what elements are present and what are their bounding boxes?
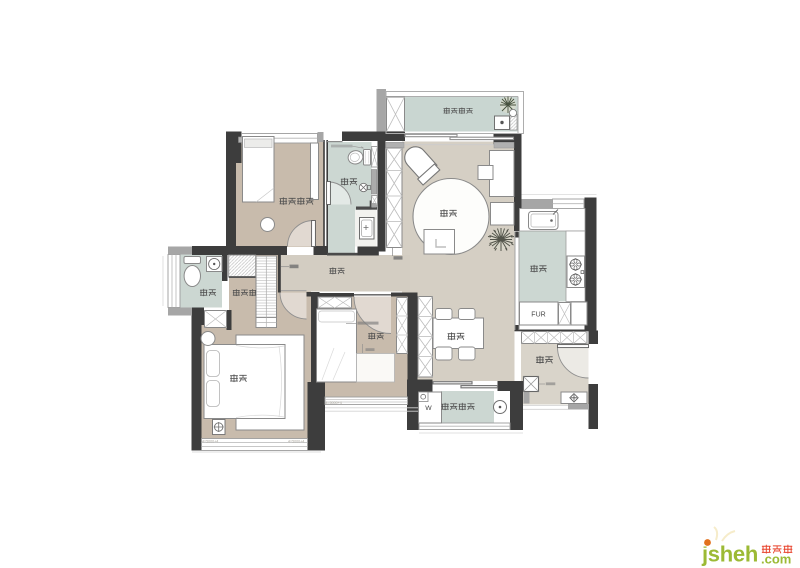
- svg-text:.com: .com: [761, 552, 791, 567]
- svg-text:4=5000+4: 4=5000+4: [288, 440, 304, 444]
- svg-text:4=5000+4: 4=5000+4: [202, 440, 218, 444]
- svg-text:4=5000+4: 4=5000+4: [326, 401, 342, 405]
- svg-text:W: W: [425, 405, 432, 412]
- svg-text:FUR: FUR: [531, 312, 545, 319]
